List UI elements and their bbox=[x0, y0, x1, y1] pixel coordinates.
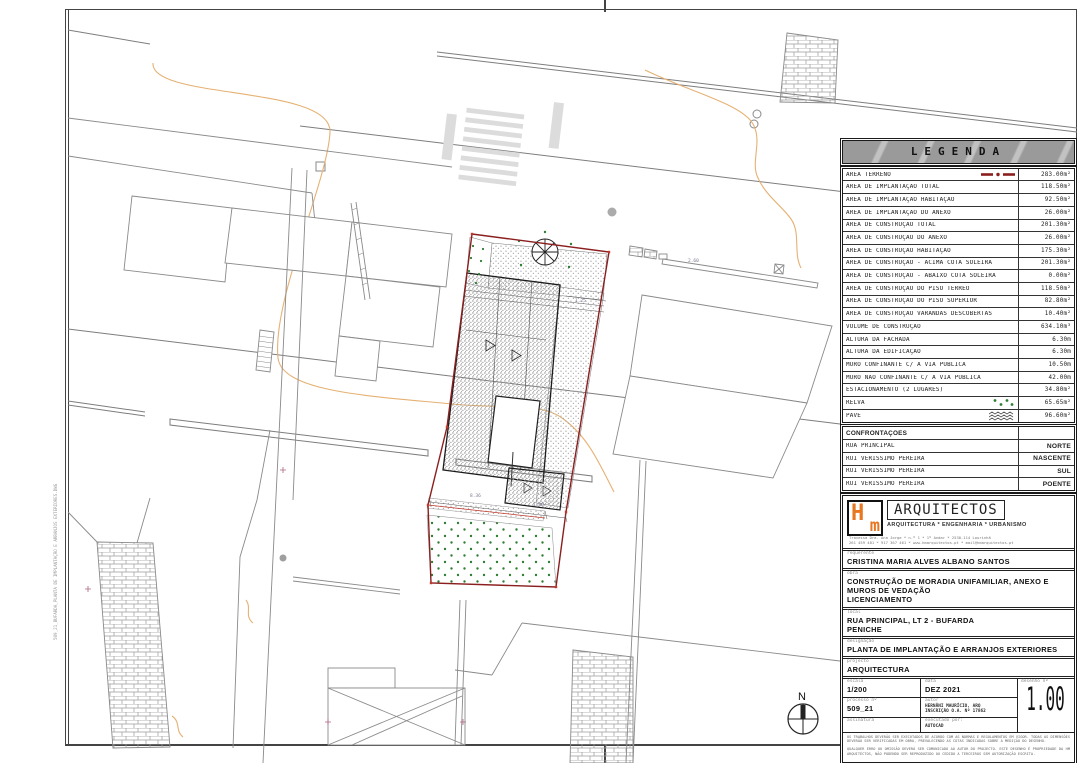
legend-row-label: ESTACIONAMENTO (2 LUGARES) bbox=[843, 387, 1018, 393]
confrontation-row: RUI VERISSIMO PEREIRASUL bbox=[843, 466, 1074, 479]
legend-row-label: MURO CONFINANTE C/ A VIA PÚBLICA bbox=[843, 362, 1018, 368]
north-arrow: N bbox=[788, 691, 818, 734]
legend-row-label: ALTURA DA FACHADA bbox=[843, 337, 1018, 343]
logo-letter-m: m bbox=[870, 516, 880, 536]
property-lot bbox=[427, 231, 610, 588]
legend-row-value: 26.00m² bbox=[1018, 207, 1074, 219]
date-value: DEZ 2021 bbox=[925, 685, 1013, 694]
legend-row: ÁREA TERRENO283.00m² bbox=[843, 169, 1074, 182]
meta-block: escala 1/200 data DEZ 2021 processo nº 5… bbox=[843, 679, 1074, 732]
drawing-title: PLANTA DE IMPLANTAÇÃO E ARRANJOS EXTERIO… bbox=[847, 645, 1070, 654]
legend-row-value: 118.50m² bbox=[1018, 181, 1074, 193]
confrontation-neighbour: RUI VERISSIMO PEREIRA bbox=[843, 481, 1018, 487]
legend-row: VOLUME DE CONSTRUÇÃO634.10m³ bbox=[843, 321, 1074, 334]
confrontation-direction: NORTE bbox=[1018, 440, 1074, 452]
dimension-label: 1.25 bbox=[575, 298, 586, 304]
location-street: RUA PRINCIPAL, LT 2 - BUFARDA bbox=[847, 616, 1070, 625]
confrontations-header: CONFRONTAÇÕES bbox=[843, 427, 1074, 440]
legend-row-label: ÁREA DE CONSTRUÇÃO - ABAIXO COTA SOLEIRA bbox=[843, 273, 1018, 279]
legend-row-value: 82.80m² bbox=[1018, 296, 1074, 308]
legend-row-label: ÁREA DE CONSTRUÇÃO DO PISO TÉRREO bbox=[843, 286, 1018, 292]
firm-block: H m ARQUITECTOS ARQUITECTURA * ENGENHARI… bbox=[843, 496, 1074, 551]
legend-row-label: PAVÊ bbox=[843, 413, 989, 419]
confrontation-neighbour: RUI VERISSIMO PEREIRA bbox=[843, 468, 1018, 474]
confrontation-direction: POENTE bbox=[1018, 478, 1074, 490]
location-block: local RUA PRINCIPAL, LT 2 - BUFARDA PENI… bbox=[843, 610, 1074, 639]
hm-logo: H m bbox=[847, 500, 883, 536]
project-block: projecto ARQUITECTURA bbox=[843, 659, 1074, 679]
client-block: requerente CRISTINA MARIA ALVES ALBANO S… bbox=[843, 551, 1074, 571]
legend-symbol-grass bbox=[989, 398, 1015, 407]
confrontation-row: RUI VERISSIMO PEREIRANASCENTE bbox=[843, 453, 1074, 466]
executed-by-cell: executado por: AUTOCAD bbox=[921, 718, 1017, 732]
legend-row-label: ÁREA DE IMPLANTAÇÃO TOTAL bbox=[843, 184, 1018, 190]
work-phase: LICENCIAMENTO bbox=[847, 595, 1070, 604]
drawing-number: 1.00 bbox=[1027, 685, 1066, 714]
legend-row-label: ÁREA DE IMPLANTAÇÃO HABITAÇÃO bbox=[843, 197, 1018, 203]
project-name: ARQUITECTURA bbox=[847, 665, 1070, 674]
legend-row-value: 65.65m² bbox=[1018, 397, 1074, 409]
north-label: N bbox=[798, 691, 806, 703]
general-notes: OS TRABALHOS DEVERÃO SER EXECUTADOS DE A… bbox=[843, 733, 1074, 762]
legend-row-value: 10.40m² bbox=[1018, 308, 1074, 320]
drawing-title-block: designação PLANTA DE IMPLANTAÇÃO E ARRAN… bbox=[843, 639, 1074, 659]
work-title: CONSTRUÇÃO DE MORADIA UNIFAMILIAR, ANEXO… bbox=[847, 577, 1070, 596]
legend-row: MURO CONFINANTE C/ A VIA PÚBLICA10.50m bbox=[843, 359, 1074, 372]
legend-row-label: ÁREA DE CONSTRUÇÃO TOTAL bbox=[843, 222, 1018, 228]
drawing-number-cell: desenho nº 1.00 bbox=[1017, 679, 1074, 731]
note-2: QUALQUER ERRO OU OMISSÃO DEVERÁ SER COMU… bbox=[847, 747, 1070, 757]
legend-row-value: 96.60m² bbox=[1018, 410, 1074, 422]
legend-row-value: 634.10m³ bbox=[1018, 321, 1074, 333]
legend-row-value: 42.00m bbox=[1018, 372, 1074, 384]
legend-row-label: ALTURA DA EDIFICAÇÃO bbox=[843, 349, 1018, 355]
legend-row: ÁREA DE CONSTRUÇÃO HABITAÇÃO175.30m² bbox=[843, 245, 1074, 258]
legend-panel: LEGENDA ÁREA TERRENO283.00m²ÁREA DE IMPL… bbox=[840, 140, 1077, 763]
legend-table: ÁREA TERRENO283.00m²ÁREA DE IMPLANTAÇÃO … bbox=[842, 168, 1075, 423]
legend-row-label: ÁREA DE IMPLANTAÇÃO DO ANEXO bbox=[843, 210, 1018, 216]
legend-row: MURO NÃO CONFINANTE C/ A VIA PÚBLICA42.0… bbox=[843, 372, 1074, 385]
legend-title: LEGENDA bbox=[842, 140, 1075, 164]
dimension-label: 8.36 bbox=[470, 493, 481, 499]
legend-row: ÁREA DE CONSTRUÇÃO TOTAL201.30m² bbox=[843, 220, 1074, 233]
legend-row: ÁREA DE CONSTRUÇÃO VARANDAS DESCOBERTAS1… bbox=[843, 308, 1074, 321]
scale-value: 1/200 bbox=[847, 685, 916, 694]
confrontation-direction: SUL bbox=[1018, 466, 1074, 478]
firm-address-2: 261 459 481 * 917 367 461 * www.hmarquit… bbox=[847, 541, 1070, 546]
date-cell: data DEZ 2021 bbox=[921, 679, 1017, 696]
legend-row: ÁREA DE IMPLANTAÇÃO TOTAL118.50m² bbox=[843, 181, 1074, 194]
legend-row: ÁREA DE IMPLANTAÇÃO HABITAÇÃO92.50m² bbox=[843, 194, 1074, 207]
legend-row-value: 92.50m² bbox=[1018, 194, 1074, 206]
sheet-file-note: 509_21_BUFARDA_PLANTA DE IMPLANTAÇÃO E A… bbox=[53, 483, 58, 640]
executed-by: AUTOCAD bbox=[925, 724, 1013, 730]
legend-title-text: LEGENDA bbox=[911, 145, 1006, 158]
confrontation-neighbour: RUI VERISSIMO PEREIRA bbox=[843, 456, 1018, 462]
client-name: CRISTINA MARIA ALVES ALBANO SANTOS bbox=[847, 557, 1070, 566]
work-block: obra CONSTRUÇÃO DE MORADIA UNIFAMILIAR, … bbox=[843, 571, 1074, 610]
legend-row: ALTURA DA EDIFICAÇÃO6.30m bbox=[843, 346, 1074, 359]
legend-row-label: VOLUME DE CONSTRUÇÃO bbox=[843, 324, 1018, 330]
scale-cell: escala 1/200 bbox=[843, 679, 921, 696]
title-block: H m ARQUITECTOS ARQUITECTURA * ENGENHARI… bbox=[842, 495, 1075, 763]
process-cell: processo nº 509_21 bbox=[843, 698, 921, 717]
legend-row-label: ÁREA DE CONSTRUÇÃO VARANDAS DESCOBERTAS bbox=[843, 311, 1018, 317]
legend-row-label: ÁREA DE CONSTRUÇÃO DO PISO SUPERIOR bbox=[843, 298, 1018, 304]
dimension-label: 2.60 bbox=[688, 258, 699, 264]
legend-row: ESTACIONAMENTO (2 LUGARES)34.80m² bbox=[843, 384, 1074, 397]
legend-row-value: 10.50m bbox=[1018, 359, 1074, 371]
legend-row: ALTURA DA FACHADA6.30m bbox=[843, 334, 1074, 347]
legend-row: ÁREA DE CONSTRUÇÃO DO ANEXO26.00m² bbox=[843, 232, 1074, 245]
legend-row-value: 34.80m² bbox=[1018, 384, 1074, 396]
confrontation-row: RUA PRINCIPALNORTE bbox=[843, 440, 1074, 453]
note-1: OS TRABALHOS DEVERÃO SER EXECUTADOS DE A… bbox=[847, 735, 1070, 745]
legend-row-label: ÁREA DE CONSTRUÇÃO HABITAÇÃO bbox=[843, 248, 1018, 254]
legend-row-value: 283.00m² bbox=[1018, 169, 1074, 181]
legend-row-label: RELVA bbox=[843, 400, 989, 406]
legend-row-label: ÁREA DE CONSTRUÇÃO - ACIMA COTA SOLEIRA bbox=[843, 260, 1018, 266]
house-footprint bbox=[443, 273, 560, 487]
legend-row: RELVA65.65m² bbox=[843, 397, 1074, 410]
legend-row: ÁREA DE IMPLANTAÇÃO DO ANEXO26.00m² bbox=[843, 207, 1074, 220]
confrontations-table: CONFRONTAÇÕESRUA PRINCIPALNORTERUI VERIS… bbox=[842, 426, 1075, 490]
legend-row-value: 201.30m² bbox=[1018, 220, 1074, 232]
legend-row-value: 6.30m bbox=[1018, 346, 1074, 358]
legend-row-value: 0.00m² bbox=[1018, 270, 1074, 282]
author-registration: INSCRIÇÃO O.A. Nº 17862 bbox=[925, 709, 1013, 715]
legend-row-value: 118.50m² bbox=[1018, 283, 1074, 295]
drawing-sheet: N 509_21_BUFARDA_PLANTA DE IMPLANTAÇÃO E… bbox=[0, 0, 1080, 763]
location-city: PENICHE bbox=[847, 625, 1070, 634]
crosswalk bbox=[439, 90, 564, 191]
legend-row-label: ÁREA TERRENO bbox=[843, 172, 981, 178]
firm-name: ARQUITECTOS bbox=[887, 500, 1005, 520]
legend-row-label: MURO NÃO CONFINANTE C/ A VIA PÚBLICA bbox=[843, 375, 1018, 381]
firm-tagline: ARQUITECTURA * ENGENHARIA * URBANISMO bbox=[887, 522, 1027, 528]
signature-cell: assinatura bbox=[843, 718, 921, 732]
confrontation-row: RUI VERISSIMO PEREIRAPOENTE bbox=[843, 478, 1074, 490]
logo-letter-h: H bbox=[851, 501, 864, 526]
legend-row-value: 6.30m bbox=[1018, 334, 1074, 346]
legend-row: PAVÊ96.60m² bbox=[843, 410, 1074, 422]
legend-row: ÁREA DE CONSTRUÇÃO - ABAIXO COTA SOLEIRA… bbox=[843, 270, 1074, 283]
legend-row-value: 26.00m² bbox=[1018, 232, 1074, 244]
dimension-label: 1.86 bbox=[533, 502, 544, 508]
lawn-area bbox=[427, 515, 556, 587]
legend-symbol-pave bbox=[989, 411, 1015, 421]
legend-row: ÁREA DE CONSTRUÇÃO DO PISO SUPERIOR82.80… bbox=[843, 296, 1074, 309]
legend-row-value: 201.30m² bbox=[1018, 258, 1074, 270]
confrontation-neighbour: RUA PRINCIPAL bbox=[843, 443, 1018, 449]
legend-row: ÁREA DE CONSTRUÇÃO DO PISO TÉRREO118.50m… bbox=[843, 283, 1074, 296]
legend-row-value: 175.30m² bbox=[1018, 245, 1074, 257]
legend-row-label: ÁREA DE CONSTRUÇÃO DO ANEXO bbox=[843, 235, 1018, 241]
legend-symbol-boundary bbox=[981, 171, 1015, 178]
confrontation-direction: NASCENTE bbox=[1018, 453, 1074, 465]
process-number: 509_21 bbox=[847, 704, 916, 713]
author-cell: autor HERNÂNI MAURÍCIO, ARQ INSCRIÇÃO O.… bbox=[921, 698, 1017, 717]
legend-row: ÁREA DE CONSTRUÇÃO - ACIMA COTA SOLEIRA2… bbox=[843, 258, 1074, 271]
